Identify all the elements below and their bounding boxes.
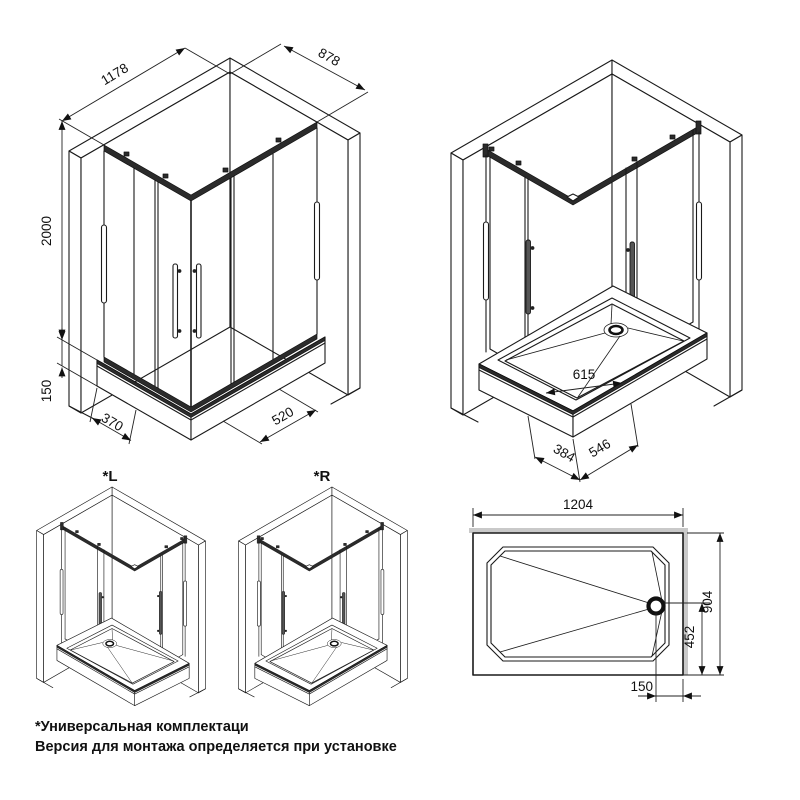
wall-profile bbox=[102, 225, 107, 303]
open-view bbox=[451, 60, 742, 437]
notes: *Универсальная комплектаци Версия для мо… bbox=[35, 719, 397, 755]
dim-height: 2000 bbox=[39, 216, 54, 246]
dim-tray-depth: 904 bbox=[700, 590, 715, 613]
note-line-1: *Универсальная комплектаци bbox=[35, 719, 249, 735]
tray-plan-view: 1204 904 452 150 bbox=[469, 497, 724, 702]
tray-outline bbox=[473, 533, 683, 675]
dim-drain-from-bottom: 452 bbox=[682, 626, 697, 649]
technical-drawing-canvas: 1178 878 2000 150 370 520 615 384 546 *L… bbox=[0, 0, 800, 800]
wall-profile bbox=[315, 202, 320, 280]
closed-view: 1178 878 2000 150 370 520 bbox=[39, 44, 368, 444]
variant-right-label: *R bbox=[314, 468, 331, 485]
dim-tray-height: 150 bbox=[39, 380, 54, 403]
dim-width: 1178 bbox=[98, 60, 131, 88]
dim-tray-width: 1204 bbox=[563, 497, 594, 512]
dim-drain-from-right: 150 bbox=[630, 679, 653, 694]
dim-inner-width: 615 bbox=[573, 367, 596, 382]
dim-right-segment: 520 bbox=[269, 404, 296, 428]
dim-right-segment: 546 bbox=[586, 436, 613, 460]
note-line-2: Версия для монтажа определяется при уста… bbox=[35, 739, 397, 755]
variant-right-view bbox=[239, 487, 408, 706]
variant-left-view bbox=[37, 487, 206, 706]
dim-left-segment: 370 bbox=[99, 410, 126, 434]
variant-left-label: *L bbox=[103, 468, 118, 485]
